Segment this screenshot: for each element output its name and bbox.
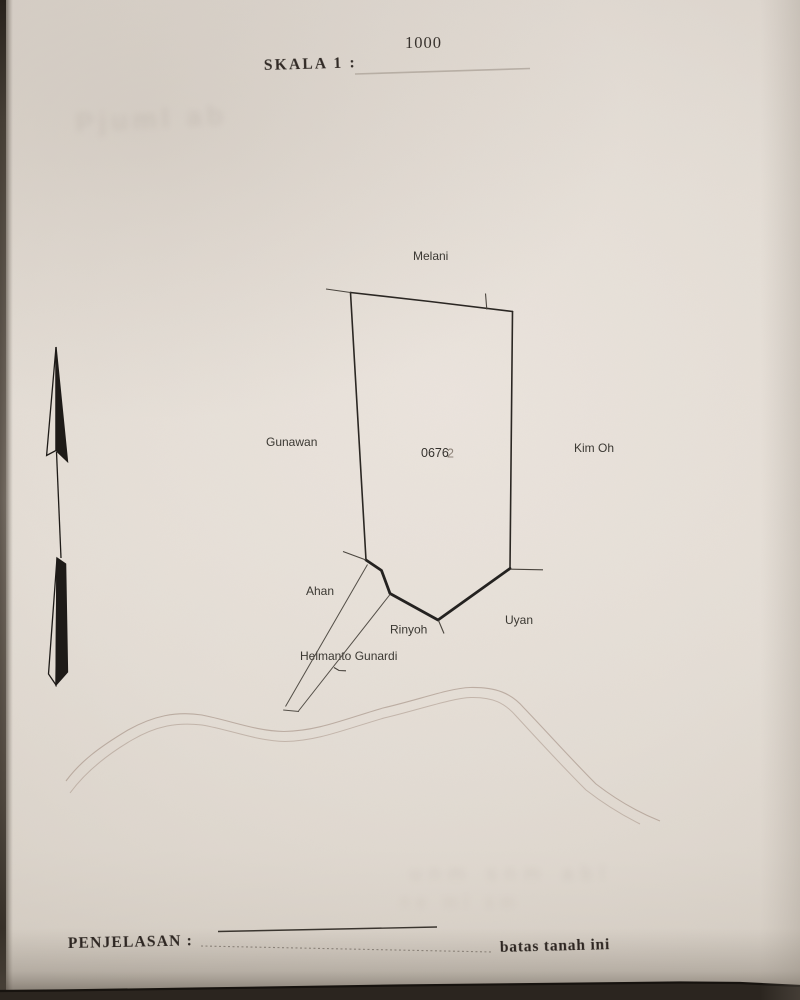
svg-text:PENJELASAN :: PENJELASAN : (68, 932, 193, 952)
svg-text:SKALA 1 :: SKALA 1 : (264, 54, 357, 74)
svg-text:Melani: Melani (413, 249, 448, 263)
svg-text:0676: 0676 (421, 446, 449, 460)
svg-text:2: 2 (447, 447, 454, 461)
svg-text:batas tanah ini: batas tanah ini (500, 936, 611, 956)
svg-text:Gunawan: Gunawan (266, 435, 317, 449)
svg-text:Ahan: Ahan (306, 584, 334, 598)
svg-text:1000: 1000 (405, 33, 442, 52)
svg-text:Rinyoh: Rinyoh (390, 623, 427, 637)
svg-text:Kim Oh: Kim Oh (574, 441, 614, 455)
svg-text:unm snm abl: unm snm abl (410, 863, 613, 885)
svg-text:Uyan: Uyan (505, 613, 533, 627)
svg-text:ne ml sm: ne ml sm (400, 892, 521, 912)
